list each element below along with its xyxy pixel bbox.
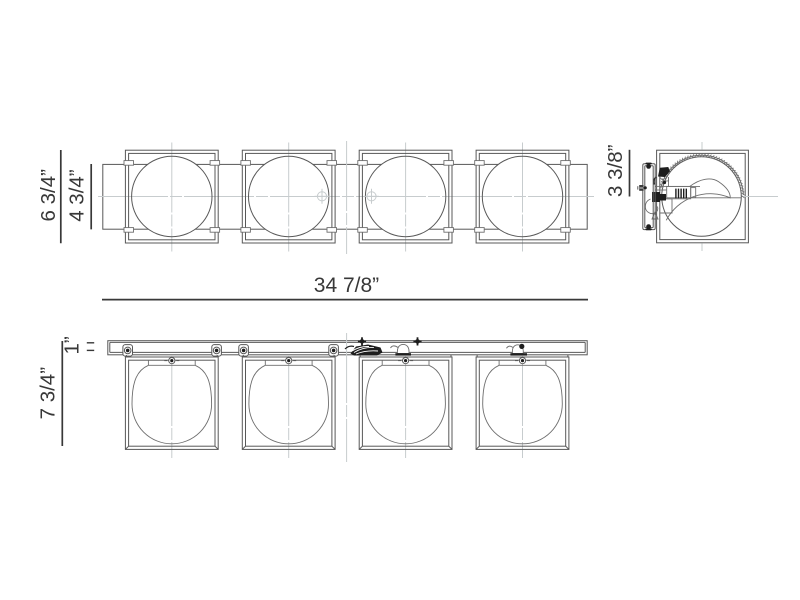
svg-text:34 7/8”: 34 7/8”: [314, 274, 379, 297]
svg-text:7 3/4”: 7 3/4”: [37, 367, 60, 420]
svg-text:6 3/4”: 6 3/4”: [37, 169, 60, 222]
svg-text:3 3/8”: 3 3/8”: [604, 144, 627, 197]
svg-text:1”: 1”: [61, 336, 84, 354]
svg-text:4 3/4”: 4 3/4”: [66, 169, 89, 222]
